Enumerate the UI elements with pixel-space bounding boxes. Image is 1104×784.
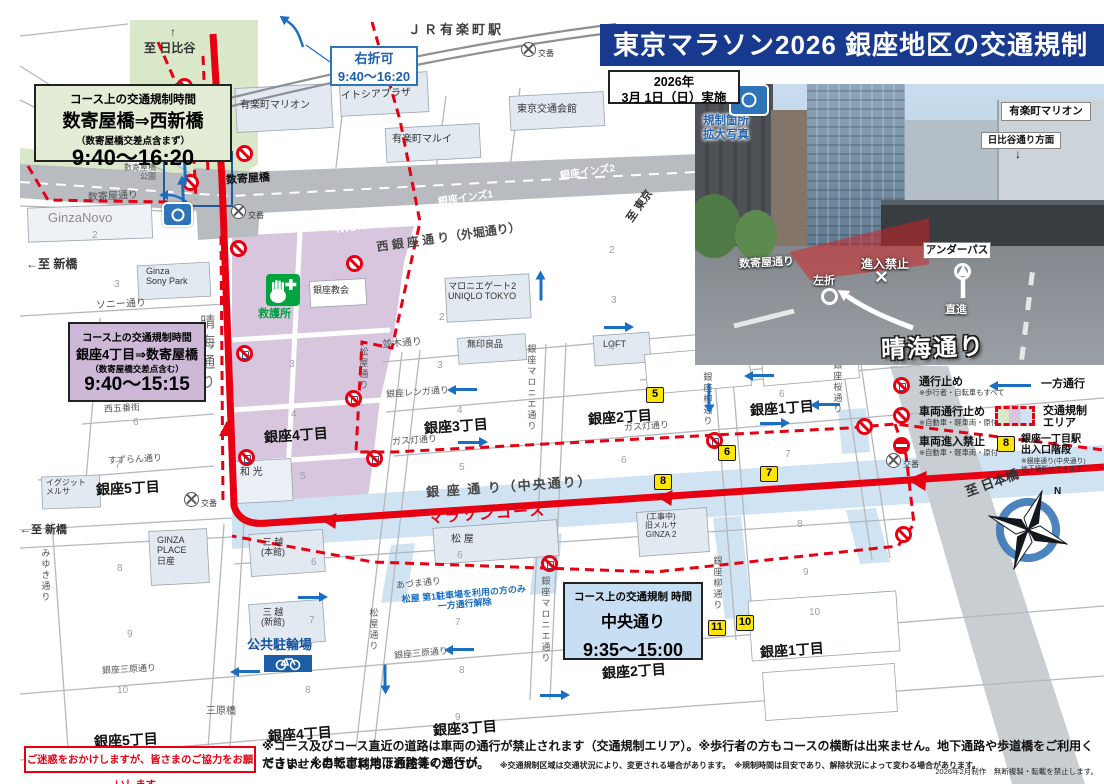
- station-exit-marker: 11: [708, 620, 726, 636]
- building-label: 有楽町マリオン: [240, 100, 310, 112]
- building-label: (工事中) 旧メルサ GINZA 2: [645, 512, 677, 540]
- street-label: 銀座インズ1: [437, 189, 493, 208]
- right-turn-time: 9:40～16:20: [332, 68, 416, 86]
- regulation-time: 9:35～15:00: [565, 636, 701, 662]
- koban-icon: 交番: [231, 204, 246, 219]
- one-way-icon: [997, 384, 1031, 387]
- street-label: 松屋通り: [358, 347, 368, 391]
- block-number-label: 3: [437, 360, 443, 372]
- prohibition-sign-icon: [236, 145, 253, 162]
- block-number-label: 4: [457, 405, 463, 417]
- regulation-box-chuo-dori: コース上の交通規制 時間 中央通り 9:35～15:00: [563, 582, 703, 660]
- block-number-label: 8: [117, 563, 123, 575]
- one-way-arrow-icon: [298, 596, 320, 599]
- regulation-time: 9:40～16:20: [36, 147, 230, 169]
- prohibition-sign-icon: [856, 418, 873, 435]
- district-label: 銀座3丁目: [424, 416, 489, 437]
- block-number-label: 3: [289, 359, 295, 371]
- regulation-route: 銀座4丁目⇒数寄屋橋: [70, 344, 204, 363]
- prohibition-sign-icon: [541, 555, 558, 572]
- block-number-label: 7: [309, 615, 315, 627]
- street-label: 松屋通り: [368, 608, 378, 652]
- building-label: 三 越 (本館): [261, 537, 285, 558]
- koban-label: 交番: [201, 498, 217, 509]
- legend-label-no-entry: 車両進入禁止: [919, 436, 985, 448]
- one-way-arrow-icon: [540, 279, 543, 301]
- direction-label: 三原橋: [206, 706, 236, 718]
- building-label: 三 越 (新館): [261, 607, 285, 628]
- photo-tag-label: 規制箇所 拡大写真: [703, 115, 787, 143]
- regulation-route: 中央通り: [565, 608, 701, 632]
- regulation-box-ginza4-sukiyabashi: コース上の交通規制時間 銀座4丁目⇒数寄屋橋 （数寄屋橋交差点含む） 9:40～…: [68, 322, 206, 402]
- block-number-label: 2: [92, 230, 98, 242]
- building-label: イトシアプラザ: [341, 87, 412, 102]
- photo-label-hibiya: 日比谷通り方面: [981, 132, 1061, 149]
- note-label: N: [1054, 486, 1061, 498]
- block-number-label: 4: [291, 409, 297, 421]
- regulation-heading: コース上の交通規制時間: [36, 91, 230, 107]
- one-way-arrow-icon: [452, 648, 474, 651]
- block-number-label: 5: [459, 462, 465, 474]
- block-number-label: 8: [459, 665, 465, 677]
- building-label: 和 光: [240, 467, 263, 479]
- street-label: 銀座マロニエ通り: [526, 344, 536, 432]
- prohibition-sign-icon: [346, 255, 363, 272]
- poster: ↑至 日比谷←至 新橋←至 新橋至 東京至 日本橋→三原橋ＪＲ有楽町駅数寄屋橋数…: [0, 0, 1104, 784]
- block-number-label: 7: [115, 460, 121, 472]
- right-turn-label: 右折可: [332, 50, 416, 68]
- station-exit-marker: 7: [760, 466, 778, 482]
- note-label: 救護所: [258, 308, 291, 321]
- station-exit-marker: 8: [654, 474, 672, 490]
- regulation-heading: コース上の交通規制時間: [70, 329, 204, 344]
- photo-panel: × 数寄屋通り 左折 進入禁止 直進 アンダーパス 晴海通り 有楽町マリオン 日…: [695, 84, 1104, 365]
- station-exit-marker: 6: [718, 445, 736, 461]
- prohibition-sign-icon: [238, 449, 255, 466]
- block-number-label: 6: [311, 557, 317, 569]
- regulation-box-sukiyabashi-nishishinbashi: コース上の交通規制時間 数寄屋橋⇒西新橋 （数寄屋橋交差点含まず） 9:40～1…: [34, 84, 232, 162]
- building-label: GinzaNovo: [48, 211, 112, 226]
- street-label: 銀座柳通り: [712, 556, 722, 611]
- poster-title: 東京マラソン2026 銀座地区の交通規制: [600, 24, 1104, 66]
- note-label: 公共駐輪場: [247, 638, 312, 653]
- block-number-label: 2: [439, 312, 445, 324]
- footer-line2-main: できませんのでご利用はお控えください。: [262, 757, 489, 771]
- prohibition-sign-icon: [230, 240, 247, 257]
- district-label: 銀座1丁目: [750, 398, 815, 419]
- block-number-label: 2: [609, 245, 615, 257]
- one-way-arrow-icon: [384, 665, 387, 687]
- district-label: 銀座5丁目: [96, 478, 161, 497]
- photo-label-underpass: アンダーパス: [923, 242, 991, 259]
- left-turn-ring: [821, 288, 838, 305]
- one-way-arrow-icon: [760, 422, 782, 425]
- koban-icon: 交番: [521, 42, 536, 57]
- block-number-label: 8: [305, 685, 311, 697]
- street-label: 銀 座 通 り（中央通り）: [426, 474, 593, 501]
- building-label: 松 屋: [451, 534, 474, 546]
- date-year: 2026年: [610, 74, 738, 90]
- note-label: 松屋 第1駐車場を利用の方のみ 一方通行解除: [401, 584, 527, 615]
- koban-icon: 交番: [184, 492, 199, 507]
- block-number-label: 9: [803, 567, 809, 579]
- block-number-label: 8: [797, 519, 803, 531]
- legend-note-vehicle-closed: ※自動車・軽車両・原付: [919, 419, 998, 428]
- street-label: みゆき通り: [40, 548, 50, 603]
- block-number-label: 7: [785, 449, 791, 461]
- one-way-arrow-icon: [455, 388, 477, 391]
- one-way-arrow-icon: [458, 441, 480, 444]
- first-aid-icon: [266, 274, 300, 306]
- date-line: 3月 1日（日）実施: [610, 90, 738, 106]
- photo-label-left-turn: 左折: [813, 272, 835, 288]
- koban-label: 交番: [248, 210, 264, 221]
- apology-box: ご迷惑をおかけしますが、皆さまのご協力をお願いします。: [24, 746, 256, 773]
- block-number-label: 5: [300, 471, 306, 483]
- one-way-arrow-icon: [708, 384, 711, 406]
- regulation-heading: コース上の交通規制 時間: [565, 589, 701, 604]
- regulation-area-icon: [995, 406, 1035, 426]
- street-label: 並木通り: [382, 337, 423, 351]
- street-label: あづま通り: [396, 576, 442, 591]
- building-label: Ginza Sony Park: [146, 266, 188, 287]
- footer-credit: 2026年2月制作 無断複製・転載を禁止します。: [830, 766, 1098, 777]
- block-number-label: 7: [455, 617, 461, 629]
- block-number-label: 10: [809, 607, 820, 619]
- street-label: 銀座三原通り: [394, 646, 449, 661]
- district-label: 銀座1丁目: [760, 640, 825, 661]
- street-label: 銀座インズ2: [559, 163, 615, 182]
- legend-note-station: ※銀座通り(中央通り) 地下横断はできます: [1021, 458, 1086, 474]
- station-exit-marker-icon: 8: [997, 436, 1015, 452]
- date-box: 2026年 3月 1日（日）実施: [608, 70, 740, 104]
- photo-label-harumi-dori: 晴海通り: [880, 326, 985, 365]
- one-way-arrow-icon: [238, 670, 260, 673]
- prohibition-sign-icon: [236, 345, 253, 362]
- street-label: 銀座レンガ通り: [386, 385, 450, 400]
- legend-label-closed: 通行止め: [919, 376, 963, 388]
- block-number-label: 10: [117, 685, 128, 697]
- hibiya-arrow: ↓: [1015, 147, 1021, 161]
- street-label: 銀座マロニエ通り: [540, 576, 550, 664]
- block-number-label: 9: [127, 629, 133, 641]
- legend-note-no-entry: ※自動車・軽車両・原付: [919, 449, 998, 458]
- block-number-label: 9: [455, 712, 461, 724]
- vehicle-closed-icon: [893, 407, 910, 424]
- course-label: マラソンコース: [428, 502, 547, 527]
- koban-label: 交番: [538, 48, 554, 59]
- street-label: 数寄屋橋: [226, 171, 271, 187]
- street-label: 数寄屋通り: [88, 190, 139, 204]
- photo-label-straight: 直進: [945, 301, 967, 317]
- direction-label: ↑: [170, 26, 176, 40]
- street-label: ソニー通り: [96, 298, 147, 312]
- legend-label-vehicle-closed: 車両通行止め: [919, 406, 985, 418]
- building-label: マロニエゲート2 UNIQLO TOKYO: [448, 281, 516, 302]
- block-number-label: 6: [457, 550, 463, 562]
- prohibition-sign-icon: [366, 450, 383, 467]
- station-exit-marker: 5: [646, 387, 664, 403]
- regulation-time: 9:40～15:15: [70, 375, 204, 396]
- one-way-arrow-icon: [752, 374, 774, 377]
- legend-label-one-way: 一方通行: [1041, 378, 1085, 390]
- one-way-arrow-icon: [604, 326, 626, 329]
- right-turn-box: 右折可 9:40～16:20: [330, 46, 418, 86]
- legend-label-station: 銀座一丁目駅 出入口階段: [1021, 434, 1081, 456]
- street-label: NISHIGINZA: [335, 214, 410, 237]
- road-closed-icon: [893, 377, 910, 394]
- bicycle-parking-icon: [264, 655, 312, 672]
- building-label: 東京交通会館: [517, 104, 577, 116]
- legend: 通行止め ※歩行者・自転車もすべて 車両通行止め ※自動車・軽車両・原付 車両進…: [885, 372, 1104, 484]
- prohibition-sign-icon: [345, 390, 362, 407]
- no-entry-icon: [893, 437, 910, 454]
- direction-label: ←至 新橋: [20, 524, 67, 537]
- building-label: 無印良品: [467, 339, 503, 349]
- street-label: 銀座三原通り: [102, 663, 156, 676]
- building-label: イグジット メルサ: [46, 478, 86, 496]
- block-number-label: 4: [609, 342, 615, 354]
- building-label: 有楽町マルイ: [392, 134, 452, 146]
- straight-ring: [954, 263, 971, 280]
- photo-label-sukiya-dori: 数寄屋通り: [739, 253, 795, 272]
- district-label: 銀座3丁目: [433, 718, 498, 739]
- camera-icon: [162, 202, 193, 227]
- building-label: GINZA PLACE 日産: [157, 535, 187, 566]
- block-number-label: 3: [611, 295, 617, 307]
- direction-label: ←至 新橋: [26, 258, 77, 272]
- block-number-label: 6: [621, 455, 627, 467]
- legend-label-area: 交通規制 エリア: [1043, 405, 1087, 429]
- prohibition-sign-icon: [895, 526, 912, 543]
- one-way-arrow-icon: [540, 694, 562, 697]
- building-label: 銀座教会: [313, 285, 349, 295]
- direction-label: 至 日比谷: [144, 42, 195, 56]
- block-number-label: 6: [133, 417, 139, 429]
- street-label: 西五番街: [104, 402, 141, 414]
- block-number-label: 3: [114, 279, 120, 291]
- district-label: 銀座4丁目: [264, 425, 329, 446]
- photo-label-marion: 有楽町マリオン: [1001, 102, 1091, 121]
- block-number-label: 6: [779, 389, 785, 401]
- street-label: ＪＲ有楽町駅: [408, 23, 504, 38]
- photo-label-no-entry: 進入禁止: [861, 255, 909, 272]
- district-label: 銀座2丁目: [602, 661, 667, 682]
- direction-label: 至 東京: [625, 188, 656, 225]
- one-way-arrow-icon: [818, 403, 840, 406]
- street-label: 銀座桜通り: [832, 360, 842, 415]
- regulation-route: 数寄屋橋⇒西新橋: [36, 107, 230, 133]
- station-exit-marker: 10: [736, 615, 754, 631]
